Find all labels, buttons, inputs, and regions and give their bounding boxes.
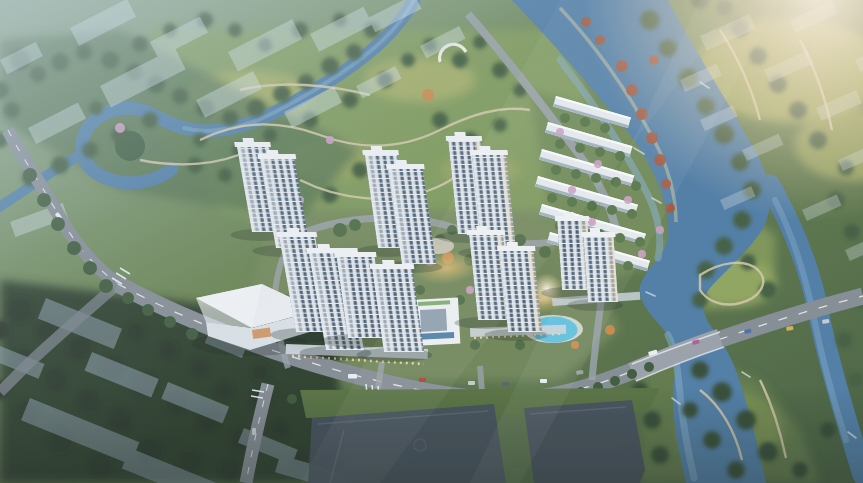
- aerial-render: [0, 0, 863, 483]
- tint-overlay: [0, 0, 863, 483]
- scene-canvas: [0, 0, 863, 483]
